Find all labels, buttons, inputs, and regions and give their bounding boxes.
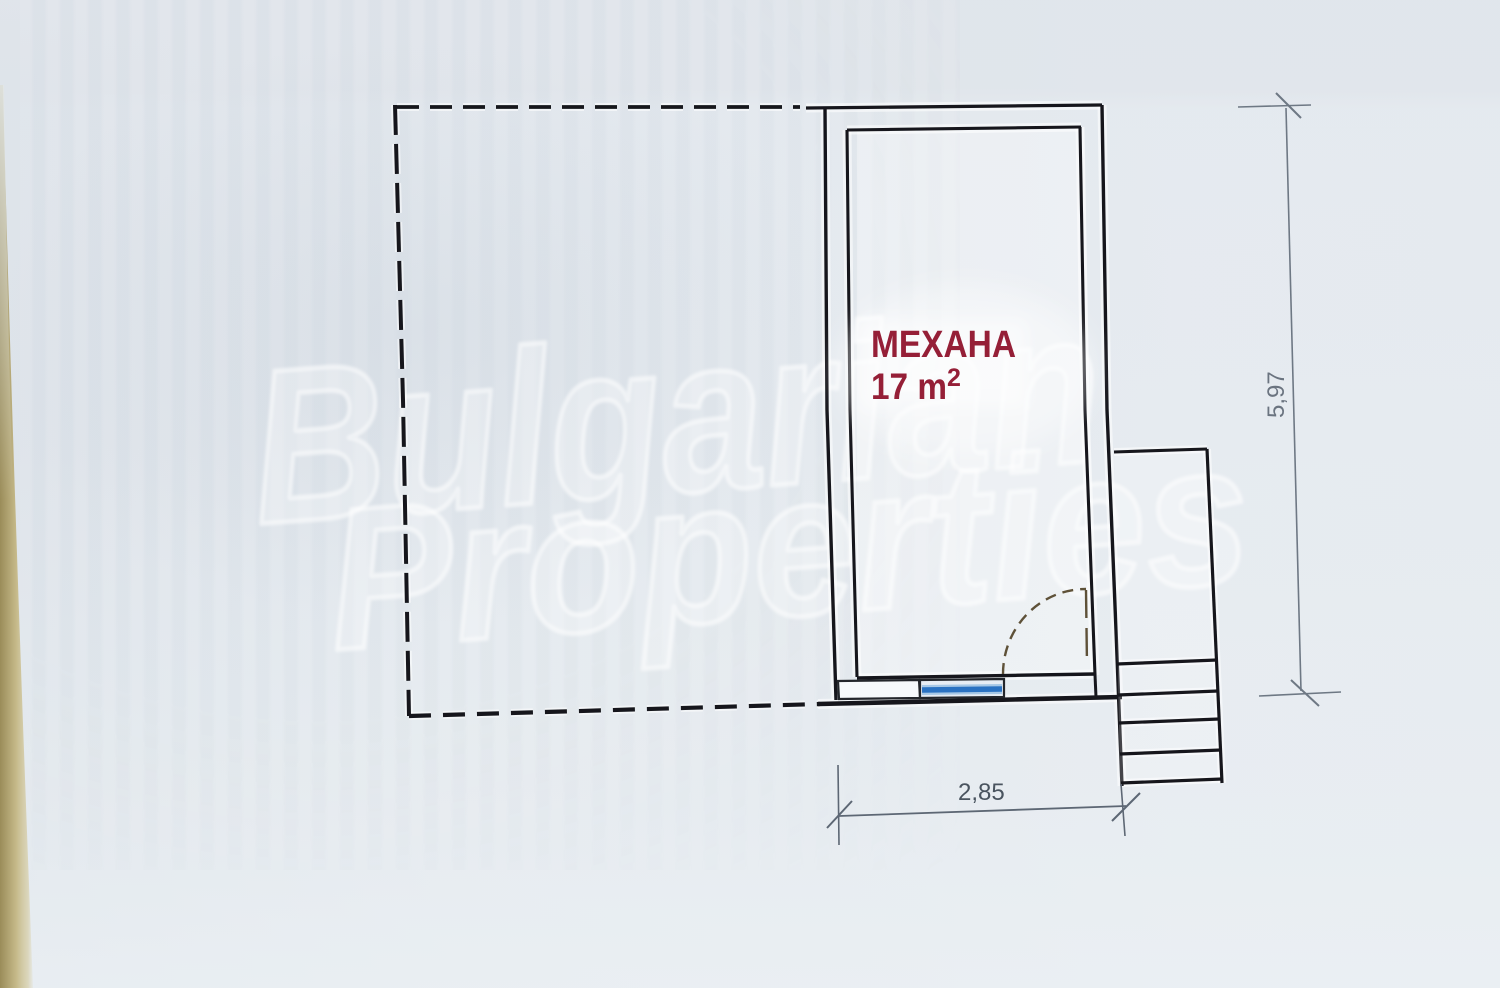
svg-text:2,85: 2,85 xyxy=(958,779,1005,806)
svg-text:5,97: 5,97 xyxy=(1263,371,1290,418)
svg-text:МЕХАНА: МЕХАНА xyxy=(871,324,1016,366)
